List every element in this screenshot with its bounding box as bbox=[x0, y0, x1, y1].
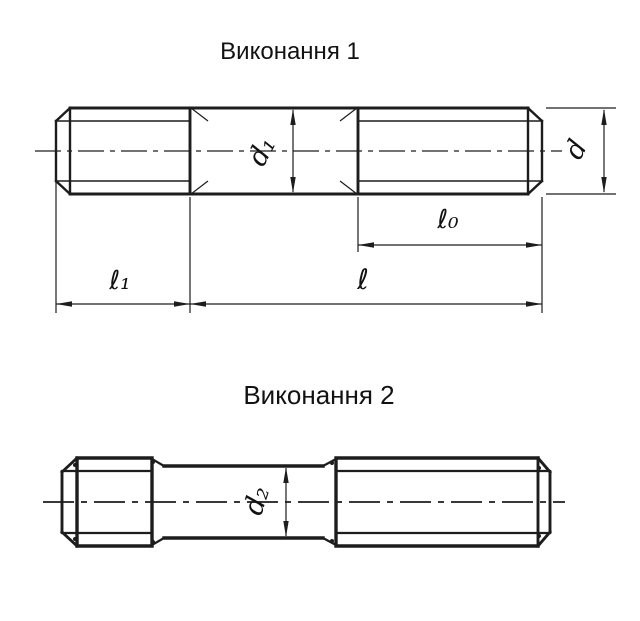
dimension-d1: d₁ bbox=[242, 109, 296, 193]
stud-drawing-version-2: Виконання 2 d₂ bbox=[43, 380, 565, 546]
dim-label-l: ℓ bbox=[356, 263, 369, 296]
dimension-l0: ℓ₀ bbox=[358, 197, 542, 252]
dimension-d2: d₂ bbox=[238, 467, 289, 537]
drawing1-title: Виконання 1 bbox=[220, 38, 360, 65]
drawing2-title: Виконання 2 bbox=[243, 380, 394, 410]
stud-drawing-version-1: Виконання 1 d₁ d ℓ₀ bbox=[35, 38, 616, 313]
dim-label-l1: ℓ₁ bbox=[108, 266, 130, 296]
dim-label-l0: ℓ₀ bbox=[436, 205, 459, 235]
dim-label-d: d bbox=[558, 135, 593, 165]
stud-technical-drawing-canvas: Виконання 1 d₁ d ℓ₀ bbox=[0, 0, 640, 621]
dim-label-d1: d₁ bbox=[242, 132, 283, 171]
dim-label-d2: d₂ bbox=[238, 483, 276, 519]
dimension-l1-l: ℓ₁ ℓ bbox=[56, 182, 542, 313]
